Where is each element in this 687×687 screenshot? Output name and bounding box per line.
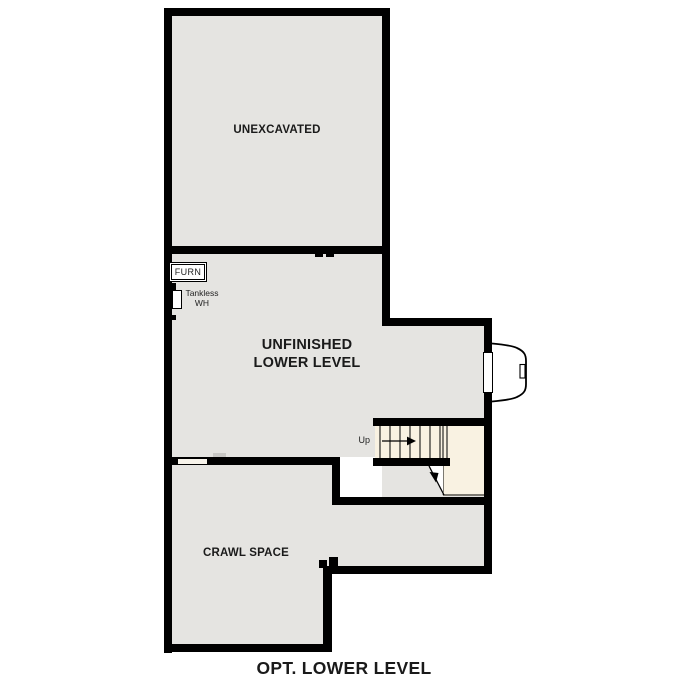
wall-right-upper [382,8,390,326]
crawl-space-floor-lower [172,566,323,644]
furnace-label: FURN [170,267,206,277]
divider-tick-2 [326,254,334,257]
wall-jog [382,318,492,326]
wall-top [164,8,390,16]
wall-crawl-right-upper [332,457,340,505]
lower-level-floor-arm [330,505,484,566]
wall-stairwell-bottom [332,497,484,505]
furnace-box: FURN [169,262,207,282]
wall-crawl-bottom [164,644,332,652]
window-well [492,344,526,402]
wall-arm-bottom [323,566,492,574]
crawl-space-label: CRAWL SPACE [166,547,326,559]
wall-stair-top [373,418,484,426]
unexcavated-label: UNEXCAVATED [164,124,390,136]
wall-stair-bottom [373,458,450,466]
window-well-ladder [520,365,525,379]
floor-plan: FURN Tankless WH UNEXCAVATED UNFINISHED … [0,0,687,687]
wall-right-outer-above-window [484,318,492,352]
water-heater-label: Tankless WH [181,289,223,308]
stair-treads-area [375,426,448,458]
up-label: Up [352,435,370,445]
wall-crawl-right-lower [323,566,332,652]
crawl-access-opening [178,458,207,464]
wall-right-outer-below-window [484,393,492,574]
wall-divider [164,246,390,254]
plan-title: OPT. LOWER LEVEL [244,658,444,679]
window-frame [483,352,493,393]
water-heater-notch-bottom [172,315,176,320]
lower-level-label: UNFINISHED LOWER LEVEL [227,337,387,372]
divider-tick-1 [315,254,323,257]
crawl-access-tick [213,453,226,457]
